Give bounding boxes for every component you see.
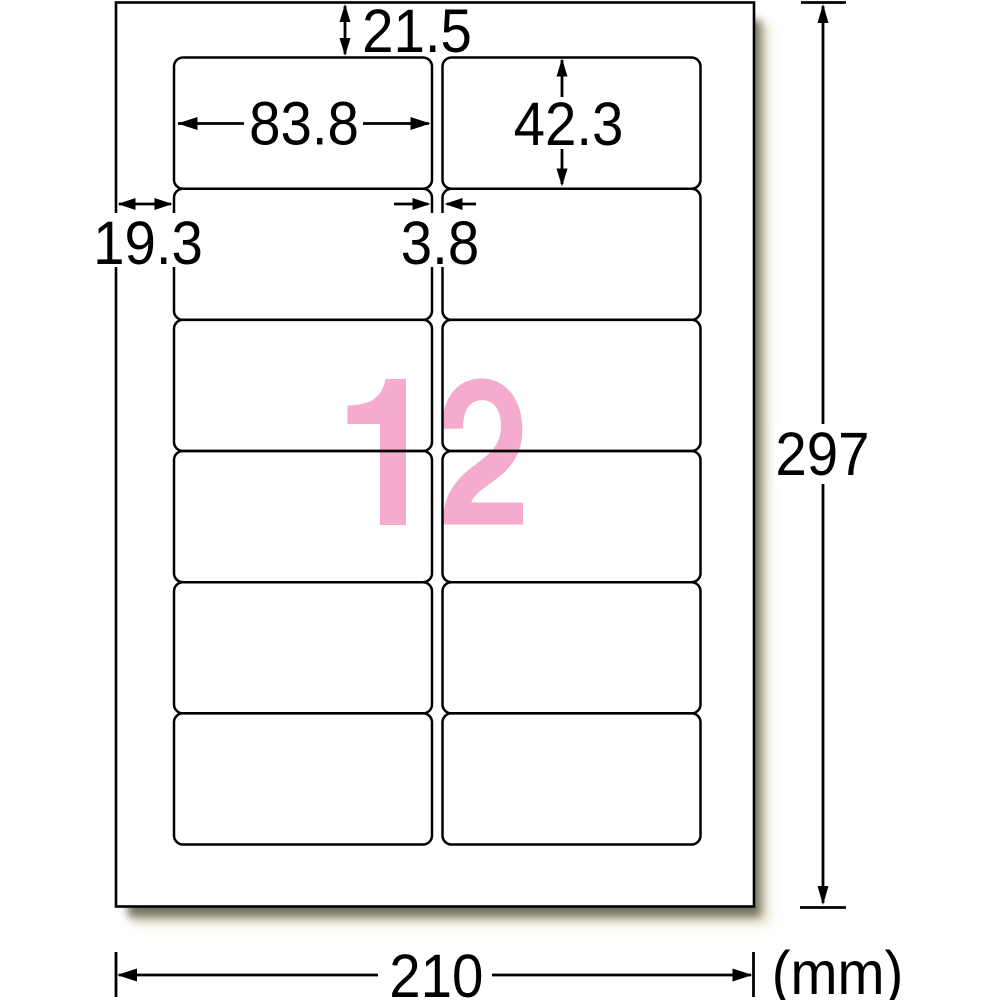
svg-text:(mm): (mm) — [772, 940, 904, 1000]
svg-text:42.3: 42.3 — [514, 91, 624, 158]
svg-text:297: 297 — [775, 421, 869, 488]
svg-text:83.8: 83.8 — [249, 91, 359, 158]
svg-text:3.8: 3.8 — [401, 210, 479, 277]
svg-text:210: 210 — [389, 943, 483, 1000]
svg-text:21.5: 21.5 — [362, 0, 472, 65]
svg-text:19.3: 19.3 — [93, 210, 203, 277]
